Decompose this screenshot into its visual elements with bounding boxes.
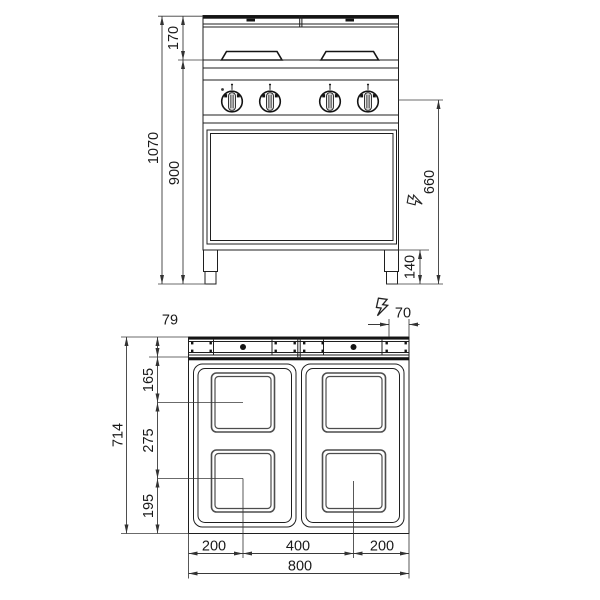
dim-col-left: 200 bbox=[202, 539, 226, 555]
rail-fastener-left bbox=[240, 344, 246, 350]
hotplate-profile-right bbox=[321, 52, 379, 61]
hotplate-profile-left bbox=[222, 52, 283, 61]
pilot-light-dot bbox=[221, 88, 224, 91]
adjustable-foot-right bbox=[387, 272, 398, 285]
dim-leg-height: 140 bbox=[403, 255, 419, 279]
hob-top-edge bbox=[203, 16, 399, 28]
dim-connection-offset: 70 bbox=[395, 306, 411, 322]
dim-total-height: 1070 bbox=[146, 132, 162, 164]
rail-fastener-right bbox=[351, 344, 357, 350]
dim-col-center: 400 bbox=[286, 539, 310, 555]
dim-row2-bottom: 195 bbox=[141, 494, 157, 518]
dim-body-height: 900 bbox=[167, 161, 183, 185]
hob-edge-clip-right bbox=[346, 19, 355, 22]
dim-row1-center: 165 bbox=[141, 368, 157, 392]
dim-top-section: 170 bbox=[166, 26, 182, 50]
plan-view: 79 70 714 165 275 195 200 400 200 800 bbox=[111, 298, 420, 578]
plan-outline bbox=[189, 337, 410, 534]
legs bbox=[204, 250, 399, 284]
hob-edge-clip-left bbox=[247, 19, 256, 22]
dim-col-right: 200 bbox=[370, 539, 394, 555]
dim-rail-depth: 79 bbox=[162, 313, 178, 329]
dim-total-depth: 714 bbox=[111, 423, 127, 447]
technical-drawing-canvas: 170 1070 900 660 140 bbox=[0, 0, 600, 600]
rail-front-edge bbox=[189, 357, 410, 360]
range-dimension-drawing: 170 1070 900 660 140 bbox=[0, 0, 600, 600]
dim-total-width: 800 bbox=[288, 559, 312, 575]
front-elevation-view: 170 1070 900 660 140 bbox=[146, 16, 443, 285]
adjustable-foot-left bbox=[205, 272, 216, 285]
dim-connection-height: 660 bbox=[422, 170, 438, 194]
lightning-bolt-icon bbox=[407, 194, 423, 206]
lightning-bolt-icon bbox=[375, 298, 388, 317]
oven-door-outline bbox=[207, 130, 397, 244]
dim-row-spacing: 275 bbox=[141, 428, 157, 452]
